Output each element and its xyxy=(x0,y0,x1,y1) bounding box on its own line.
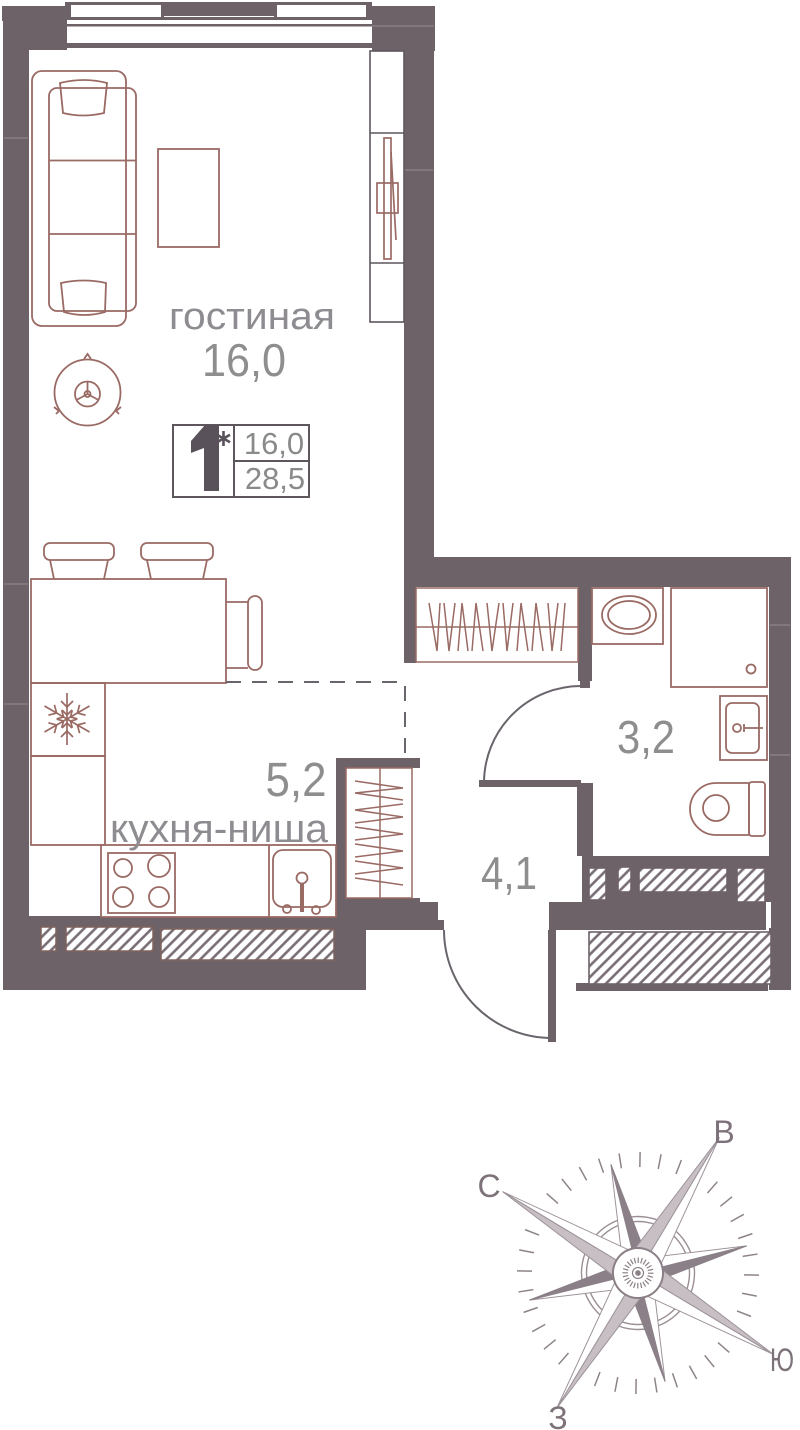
svg-text:В: В xyxy=(713,1114,734,1150)
svg-text:З: З xyxy=(548,1400,567,1430)
svg-text:кухня-ниша: кухня-ниша xyxy=(110,807,329,851)
svg-text:5,2: 5,2 xyxy=(266,754,327,807)
svg-text:28,5: 28,5 xyxy=(245,461,305,496)
svg-text:гостиная: гостиная xyxy=(169,296,335,338)
svg-text:Ю: Ю xyxy=(770,1342,794,1378)
svg-text:4,1: 4,1 xyxy=(481,847,537,899)
svg-text:16,0: 16,0 xyxy=(202,334,286,386)
svg-text:3,2: 3,2 xyxy=(617,711,675,763)
svg-text:16,0: 16,0 xyxy=(244,426,304,461)
svg-text:С: С xyxy=(477,1168,500,1204)
